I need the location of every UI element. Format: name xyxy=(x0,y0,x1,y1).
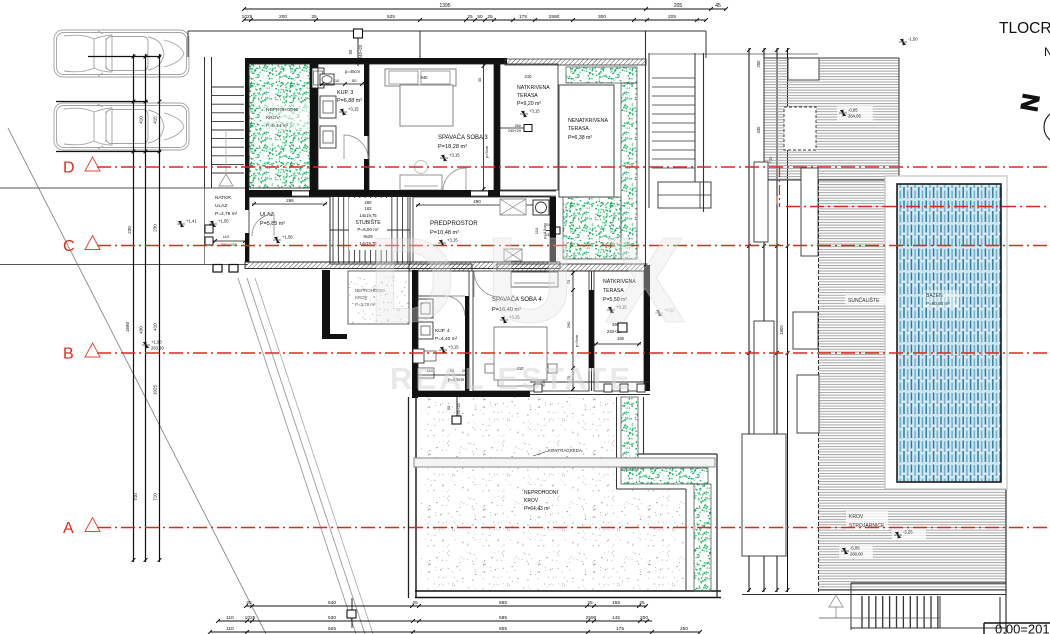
svg-text:-0,05: -0,05 xyxy=(848,108,858,113)
svg-text:50: 50 xyxy=(348,49,353,54)
svg-text:1660: 1660 xyxy=(125,321,130,332)
svg-text:P=9,20 m²: P=9,20 m² xyxy=(517,101,541,107)
svg-text:-3,25: -3,25 xyxy=(903,530,913,535)
svg-text:440: 440 xyxy=(421,75,429,80)
svg-text:230: 230 xyxy=(127,226,132,234)
svg-text:530: 530 xyxy=(328,615,336,621)
svg-text:200: 200 xyxy=(640,615,648,621)
svg-text:p=9cm: p=9cm xyxy=(484,145,489,158)
svg-text:KROV: KROV xyxy=(524,498,539,504)
svg-text:B: B xyxy=(63,346,74,363)
svg-text:P=2,78 m²: P=2,78 m² xyxy=(215,211,238,217)
svg-text:263,30: 263,30 xyxy=(151,346,164,351)
svg-text:30: 30 xyxy=(477,77,482,82)
svg-text:+1,90: +1,90 xyxy=(151,340,162,345)
svg-text:110: 110 xyxy=(333,78,340,83)
svg-text:25: 25 xyxy=(311,14,317,20)
svg-text:300: 300 xyxy=(598,14,606,20)
svg-text:1800: 1800 xyxy=(779,325,784,335)
svg-text:NATKR.: NATKR. xyxy=(215,195,232,201)
svg-text:KUP. 3: KUP. 3 xyxy=(337,90,353,96)
svg-text:TLOCRT P: TLOCRT P xyxy=(999,20,1050,37)
svg-text:+3,15: +3,15 xyxy=(348,107,359,112)
svg-text:KROV: KROV xyxy=(355,295,368,300)
svg-text:2590: 2590 xyxy=(586,615,597,621)
svg-text:25: 25 xyxy=(246,600,252,606)
svg-text:-5,05: -5,05 xyxy=(850,546,860,551)
svg-text:260: 260 xyxy=(365,200,373,205)
svg-text:205: 205 xyxy=(668,14,676,20)
svg-text:P=6,38 m²: P=6,38 m² xyxy=(568,135,592,141)
svg-text:I: I xyxy=(775,195,778,207)
svg-text:250+150: 250+150 xyxy=(221,242,237,247)
svg-text:1025: 1025 xyxy=(153,384,158,395)
svg-text:P=9,44 m²: P=9,44 m² xyxy=(266,123,289,129)
svg-text:230: 230 xyxy=(153,224,158,232)
svg-text:266: 266 xyxy=(286,198,294,203)
svg-text:710: 710 xyxy=(133,493,138,501)
svg-text:KROV: KROV xyxy=(266,115,280,121)
svg-text:260,00: 260,00 xyxy=(850,552,863,557)
svg-text:p=45cm: p=45cm xyxy=(345,69,361,74)
svg-text:1025: 1025 xyxy=(242,14,253,20)
svg-text:1395: 1395 xyxy=(439,3,450,9)
svg-text:430: 430 xyxy=(139,326,144,334)
svg-text:KROV: KROV xyxy=(849,514,864,520)
svg-text:525: 525 xyxy=(387,14,395,20)
svg-text:540: 540 xyxy=(328,600,336,606)
svg-text:NEPROHODNI: NEPROHODNI xyxy=(524,490,558,496)
svg-text:N: N xyxy=(1044,45,1050,59)
svg-text:585: 585 xyxy=(499,615,507,621)
svg-text:REAL ESTATE: REAL ESTATE xyxy=(390,361,633,396)
svg-text:P=18,28 m²: P=18,28 m² xyxy=(438,144,467,150)
svg-text:NENATKRIVENA: NENATKRIVENA xyxy=(568,118,609,124)
svg-text:50: 50 xyxy=(477,14,483,20)
svg-text:175: 175 xyxy=(519,14,527,20)
svg-text:NATKRIVENA: NATKRIVENA xyxy=(517,85,550,91)
svg-text:SPAVAĆA SOBA 3: SPAVAĆA SOBA 3 xyxy=(438,134,488,141)
svg-text:P=6,88 m²: P=6,88 m² xyxy=(337,98,362,104)
svg-text:DUX: DUX xyxy=(368,212,716,348)
svg-text:710: 710 xyxy=(153,493,158,501)
svg-text:195+20: 195+20 xyxy=(456,403,461,417)
svg-text:KONTRAGREDA: KONTRAGREDA xyxy=(548,448,582,453)
svg-text:410: 410 xyxy=(139,116,144,124)
svg-text:45: 45 xyxy=(715,3,721,9)
svg-text:110: 110 xyxy=(226,615,234,621)
svg-text:410: 410 xyxy=(153,323,158,331)
svg-text:264,05: 264,05 xyxy=(848,114,861,119)
svg-text:+1,55: +1,55 xyxy=(218,219,229,224)
svg-text:25: 25 xyxy=(495,74,500,79)
svg-text:415: 415 xyxy=(153,116,158,124)
svg-text:200: 200 xyxy=(279,14,287,20)
svg-text:SUNČALIŠTE: SUNČALIŠTE xyxy=(848,297,880,304)
svg-text:TERASA: TERASA xyxy=(568,126,589,132)
svg-text:50: 50 xyxy=(352,78,357,83)
svg-text:250: 250 xyxy=(680,626,688,632)
svg-text:P=60,80 m²: P=60,80 m² xyxy=(926,301,950,306)
svg-text:25: 25 xyxy=(639,600,645,606)
svg-text:163: 163 xyxy=(365,206,373,211)
svg-text:205: 205 xyxy=(674,3,683,9)
svg-text:2590: 2590 xyxy=(549,14,560,20)
svg-text:240+20: 240+20 xyxy=(508,128,522,133)
svg-text:+1,41: +1,41 xyxy=(186,219,197,224)
svg-text:+1,58: +1,58 xyxy=(282,235,293,240)
svg-text:585: 585 xyxy=(499,600,507,606)
svg-text:430: 430 xyxy=(756,126,761,134)
svg-text:145: 145 xyxy=(612,615,620,621)
svg-text:A: A xyxy=(63,520,74,537)
svg-text:25: 25 xyxy=(467,14,473,20)
svg-text:NEPROHODNI: NEPROHODNI xyxy=(266,107,299,113)
svg-text:250: 250 xyxy=(756,60,761,68)
svg-text:BAZEN: BAZEN xyxy=(926,293,943,299)
svg-text:D: D xyxy=(63,160,75,177)
svg-text:1025: 1025 xyxy=(245,615,256,621)
svg-text:25: 25 xyxy=(487,14,493,20)
svg-text:+3,15: +3,15 xyxy=(449,153,460,158)
svg-text:25: 25 xyxy=(587,600,593,606)
svg-text:C: C xyxy=(63,238,75,255)
svg-text:TERASA: TERASA xyxy=(517,93,538,99)
svg-text:25: 25 xyxy=(412,600,418,606)
svg-text:490: 490 xyxy=(473,199,481,204)
svg-text:565: 565 xyxy=(328,626,336,632)
svg-text:175: 175 xyxy=(616,626,624,632)
svg-text:110: 110 xyxy=(223,234,230,239)
svg-text:0,00=201: 0,00=201 xyxy=(995,622,1050,634)
svg-text:110: 110 xyxy=(226,626,234,632)
svg-text:210: 210 xyxy=(525,74,533,79)
svg-text:+3,15: +3,15 xyxy=(529,109,540,114)
svg-text:-1,50: -1,50 xyxy=(908,37,918,42)
svg-text:P=64,43 m²: P=64,43 m² xyxy=(524,506,550,512)
svg-text:240+20: 240+20 xyxy=(358,44,363,59)
svg-text:50: 50 xyxy=(446,405,451,410)
svg-text:P=5,85 m²: P=5,85 m² xyxy=(260,221,285,227)
svg-text:ULAZ: ULAZ xyxy=(215,203,227,209)
svg-text:155: 155 xyxy=(612,600,620,606)
svg-text:655: 655 xyxy=(499,626,507,632)
